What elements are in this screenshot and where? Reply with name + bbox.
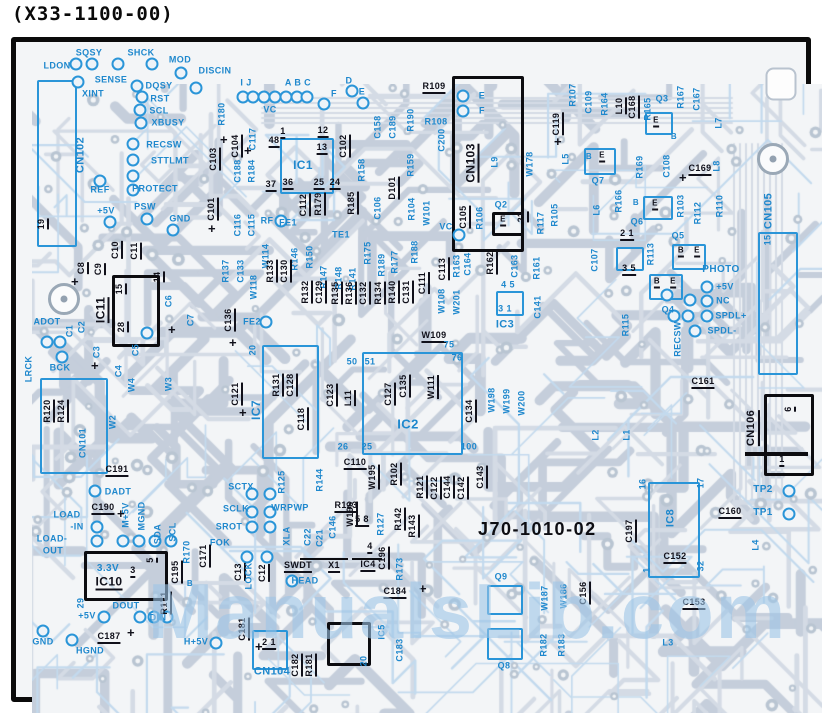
label-r183: R183: [558, 633, 567, 656]
label-c143: C143: [476, 465, 488, 488]
label-4-5: 4 5: [501, 281, 515, 290]
label-cn105: CN105: [764, 193, 775, 229]
label-e: E: [652, 200, 658, 211]
label-dadt: DADT: [105, 488, 132, 497]
label-c171: C171: [199, 544, 211, 567]
label-l7: L7: [715, 117, 724, 128]
label-12: 12: [318, 126, 329, 138]
label-b: B: [586, 153, 592, 161]
label-l9: L9: [491, 156, 500, 167]
label-ic4: IC4: [360, 560, 375, 572]
label-c6: C6: [165, 295, 174, 307]
label-l8: L8: [713, 160, 722, 171]
label-r177: R177: [391, 250, 400, 273]
label-l1: L1: [623, 429, 632, 440]
plus-mark: +: [554, 135, 562, 149]
label-29: 29: [77, 598, 86, 609]
board-number: J70-1010-02: [478, 519, 597, 540]
label-c5: C5: [132, 344, 141, 356]
label-r106: R106: [476, 206, 485, 229]
label-ldon: LDON: [43, 62, 70, 71]
label-rst: RST: [150, 95, 169, 104]
label-r110: R110: [716, 195, 725, 218]
label-sda: SDA: [154, 524, 163, 544]
solder-pad: [104, 216, 117, 229]
solder-pad: [41, 336, 54, 349]
label-c144: C144: [443, 475, 455, 498]
label-cn104: CN104: [254, 667, 290, 678]
label-tp2: TP2: [753, 485, 773, 495]
label-xint: XINT: [82, 90, 104, 99]
label-r173: R173: [396, 557, 405, 580]
label-c116: C116: [234, 214, 243, 237]
label-h+5v: H+5V: [184, 638, 208, 647]
label-c121: C121: [231, 382, 243, 405]
label-spdl+: SPDL+: [715, 312, 746, 321]
label-r162: R162: [486, 251, 498, 274]
label-r105: R105: [551, 203, 560, 226]
label-c109: C109: [585, 90, 594, 113]
solder-pad: [167, 224, 180, 237]
label-i-j: I J: [240, 79, 251, 88]
label-q3: Q3: [656, 95, 669, 104]
solder-pad: [457, 90, 470, 103]
label-fe2: FE2: [243, 318, 261, 327]
label-sense: SENSE: [95, 76, 128, 85]
label-lrck: LRCK: [25, 356, 34, 383]
label-r165: R165: [644, 97, 653, 120]
label-protect: PROTECT: [132, 185, 178, 194]
solder-pad: [246, 521, 259, 534]
label-c188: C188: [234, 159, 243, 182]
plus-mark: +: [71, 275, 79, 289]
label-w200: W200: [518, 390, 527, 415]
label-l6: L6: [593, 204, 602, 215]
solder-pad: [701, 295, 714, 308]
label-75: 75: [444, 341, 455, 350]
label-19: 19: [37, 219, 49, 230]
label-f: F: [479, 107, 485, 116]
label-c110: C110: [344, 458, 367, 470]
label-c9: C9: [94, 263, 106, 275]
label-c146: C146: [329, 515, 338, 538]
solder-pad: [72, 76, 85, 89]
label-r181: R181: [305, 653, 317, 676]
label-w2: W2: [109, 415, 118, 429]
label-w201: W201: [453, 289, 462, 314]
solder-pad: [70, 58, 83, 71]
label-r117: R117: [537, 212, 546, 235]
label-scl: SCL: [149, 107, 168, 116]
label-c2: C2: [78, 321, 87, 333]
label-sctx: SCTX: [228, 483, 254, 492]
label-r121: R121: [416, 475, 428, 498]
solder-pad: [135, 117, 148, 130]
label-c161: C161: [691, 377, 714, 389]
label-+5v: +5V: [716, 283, 733, 292]
solder-pad: [89, 485, 102, 498]
solder-pad: [190, 82, 203, 95]
label-r131: R131: [272, 373, 284, 396]
solder-pad: [86, 58, 99, 71]
label-24: 24: [330, 178, 341, 190]
label-w4: W4: [128, 378, 137, 392]
plus-mark: +: [419, 582, 427, 596]
plus-mark: +: [255, 640, 263, 654]
label-c183: C183: [396, 638, 405, 661]
label-r163: R163: [453, 254, 462, 277]
label-c1: C1: [66, 325, 75, 337]
plus-mark: +: [117, 507, 125, 521]
label-e: E: [599, 152, 605, 163]
label--in: -IN: [70, 523, 83, 532]
label-3-1: 3 1: [498, 305, 512, 314]
label-c164: C164: [464, 252, 473, 275]
label-c158: C158: [374, 115, 383, 138]
label-tp1: TP1: [753, 508, 773, 518]
label-r108: R108: [424, 118, 447, 127]
component-outline: [362, 352, 463, 455]
label-6: 6: [784, 406, 796, 411]
solder-pad: [264, 488, 277, 501]
label-ic1: IC1: [293, 159, 313, 171]
label-q7: Q7: [592, 177, 605, 186]
solder-pad: [661, 289, 674, 302]
solder-pad: [136, 91, 149, 104]
label-13: 13: [317, 143, 328, 155]
label-2-1: 2 1: [620, 229, 634, 241]
label-recsw: RECSW: [674, 321, 683, 357]
solder-pad: [783, 485, 796, 498]
label-cn102: CN102: [76, 137, 87, 173]
label-c191: C191: [105, 465, 128, 477]
label-r135: R135: [331, 281, 343, 304]
solder-pad: [98, 611, 111, 624]
solder-pad: [175, 67, 188, 80]
label-q2: Q2: [495, 201, 508, 210]
label-c107: C107: [591, 248, 600, 271]
label-r167: R167: [677, 85, 686, 108]
label-c152: C152: [663, 552, 686, 564]
label-c196: C196: [378, 546, 390, 569]
label-c4: C4: [115, 365, 124, 377]
label-c104: C104: [231, 134, 243, 157]
label-c136: C136: [224, 308, 236, 331]
label-c119: C119: [552, 113, 564, 136]
label-c118: C118: [297, 408, 309, 431]
label-w101: W101: [423, 200, 432, 225]
plus-mark: +: [168, 323, 176, 337]
label-ic5: IC5: [378, 624, 387, 639]
solder-pad: [260, 316, 273, 329]
label-1: 1: [779, 455, 784, 467]
label-r136: R136: [345, 281, 357, 304]
solder-pad: [133, 535, 146, 548]
label-ic10: IC10: [96, 576, 123, 591]
solder-pad: [264, 521, 277, 534]
label-c115: C115: [248, 214, 257, 237]
label-16: 16: [639, 479, 648, 490]
label-mgnd: MGND: [138, 501, 147, 530]
label-20: 20: [360, 656, 369, 667]
label-c21: C21: [316, 529, 325, 547]
solder-pad: [141, 213, 154, 226]
label-a-b-c: A B C: [285, 79, 311, 88]
label-36: 36: [283, 178, 294, 190]
label-e: E: [653, 117, 659, 128]
label-w195: W195: [368, 464, 380, 489]
label-srot: SROT: [216, 523, 243, 532]
solder-pad: [783, 508, 796, 521]
label-l11: L11: [344, 390, 356, 406]
label-e: E: [670, 278, 676, 289]
label-out: OUT: [43, 547, 63, 556]
label-w199: W199: [503, 388, 512, 413]
label-rf: RF: [261, 217, 274, 226]
label-3-5: 3 5: [622, 264, 636, 276]
label-w187: W187: [541, 585, 550, 610]
label-b: B: [633, 199, 639, 207]
label-ref: REF: [90, 186, 109, 195]
label-r175: R175: [364, 241, 373, 264]
label-fe1: FE1: [279, 219, 297, 228]
solder-pad: [134, 611, 147, 624]
solder-pad: [210, 637, 223, 650]
solder-pad: [701, 281, 714, 294]
label-nc: NC: [716, 297, 730, 306]
label-hgnd: HGND: [76, 647, 104, 656]
label-50: 50: [347, 358, 358, 367]
label-q9: Q9: [495, 573, 508, 582]
label-r150: R150: [306, 245, 315, 268]
label-+5v: +5V: [97, 207, 114, 216]
label-din: DIN: [150, 614, 167, 623]
component-outline: [758, 232, 798, 375]
label-xla: XLA: [283, 526, 292, 545]
label-c127: C127: [384, 382, 396, 405]
label-r188: R188: [411, 240, 420, 263]
solder-pad: [689, 325, 702, 338]
label-c141: C141: [534, 295, 543, 318]
label-l4: L4: [752, 539, 761, 550]
label-b: B: [654, 278, 660, 289]
label-r137: R137: [222, 259, 231, 282]
label-c108: C108: [663, 154, 672, 177]
plus-mark: +: [244, 144, 252, 158]
label-5: 5: [146, 557, 158, 562]
label-psw: PSW: [134, 203, 156, 212]
label-recsw: RECSW: [146, 141, 182, 150]
label-r142: R142: [394, 507, 406, 530]
label-shck: SHCK: [127, 49, 154, 58]
label-3: 3: [130, 566, 135, 578]
label-c142: C142: [457, 476, 469, 499]
label-c132: C132: [359, 281, 371, 304]
label-c195: C195: [171, 560, 183, 583]
label-head: HEAD: [291, 577, 318, 586]
label-d101: D101: [388, 176, 400, 199]
label-sclk: SCLK: [223, 505, 249, 514]
solder-pad: [91, 535, 104, 548]
label-gnd: GND: [32, 638, 53, 647]
label-1: 1: [280, 127, 285, 139]
label-c8: C8: [77, 262, 89, 274]
label-r140: R140: [388, 280, 400, 303]
label-wrpwp: WRPWP: [271, 504, 309, 513]
solder-pad: [301, 91, 314, 104]
solder-pad: [127, 138, 140, 151]
solder-pad: [357, 97, 370, 110]
label-r102: R102: [390, 462, 402, 485]
label-vc: VC: [263, 106, 276, 115]
label-r125: R125: [278, 470, 287, 493]
label-r179: R179: [314, 192, 326, 215]
label-r133: R133: [266, 259, 278, 282]
label-r171: R171: [160, 591, 172, 614]
label-r190: R190: [407, 108, 416, 131]
label-e: E: [479, 92, 485, 101]
label-c131: C131: [402, 280, 414, 303]
solder-pad: [134, 104, 147, 117]
label-r184: R184: [248, 159, 257, 182]
plus-mark: +: [679, 171, 687, 185]
solder-pad: [112, 58, 125, 71]
label-r180: R180: [218, 102, 227, 125]
label-xbusy: XBUSY: [151, 119, 184, 128]
label-l10: L10: [615, 98, 627, 115]
label-c129: C129: [315, 280, 327, 303]
label-c106: C106: [374, 196, 383, 219]
label-ic11: IC11: [95, 297, 110, 323]
pcb-annotation-layer: J70-1010-02 ManualsLib.com LDONSQSYSHCKM…: [0, 0, 838, 713]
connector-line: [745, 452, 808, 456]
component-outline: [40, 378, 108, 474]
label-e: E: [500, 216, 506, 227]
label-ic7: IC7: [250, 400, 262, 420]
label-te1: TE1: [332, 231, 350, 240]
label-2-1: 2 1: [262, 638, 276, 650]
label-c3: C3: [93, 346, 102, 358]
label-c101: C101: [207, 197, 219, 220]
solder-pad: [457, 105, 470, 118]
label-26: 26: [338, 443, 349, 452]
label-c153: C153: [682, 598, 705, 610]
label-r112: R112: [694, 202, 703, 225]
label-c113: C113: [438, 258, 450, 281]
label-spdl-: SPDL-: [708, 327, 737, 336]
solder-pad: [261, 551, 274, 564]
label-l2: L2: [592, 429, 601, 440]
label-c122: C122: [430, 476, 442, 499]
label-1: 1: [643, 567, 652, 572]
label-15: 15: [115, 284, 127, 295]
label-q5: Q5: [672, 232, 685, 241]
label-r182: R182: [540, 633, 549, 656]
label-c169: C169: [688, 164, 711, 176]
label-c102: C102: [339, 134, 351, 157]
label-22: 22: [517, 212, 529, 223]
label-5-8: 5 8: [355, 515, 369, 527]
label-r144: R144: [316, 468, 325, 491]
label-76: 76: [452, 354, 463, 363]
component-outline: [262, 345, 319, 459]
label-25: 25: [362, 443, 373, 452]
label-100: 100: [461, 443, 477, 452]
label-17: 17: [697, 478, 706, 489]
label-scl: SCL: [169, 522, 178, 541]
label-c130: C130: [280, 259, 292, 282]
label-cn106: CN106: [746, 410, 760, 446]
label-c128: C128: [286, 373, 298, 396]
solder-pad: [146, 58, 159, 71]
label-r169: R169: [636, 155, 645, 178]
label-ic2: IC2: [397, 418, 418, 431]
label-c111: C111: [418, 272, 430, 294]
label-4: 4: [367, 542, 372, 554]
mounting-hole: [766, 68, 797, 101]
label-15: 15: [764, 235, 773, 246]
label-c135: C135: [399, 374, 411, 397]
label-w111: W111: [427, 375, 439, 399]
label-l3: L3: [662, 639, 673, 648]
label-bck: BCK: [50, 364, 71, 373]
label-q8: Q8: [498, 662, 511, 671]
label-c11: C11: [130, 242, 142, 259]
label-c123: C123: [326, 383, 338, 406]
label-dqsy: DQSY: [145, 82, 172, 91]
label-c103: C103: [209, 147, 221, 170]
label-48: 48: [269, 136, 280, 148]
label-discin: DISCIN: [199, 67, 232, 76]
label-x1: X1: [328, 561, 340, 573]
label-c182: C182: [291, 653, 303, 676]
label-c160: C160: [718, 507, 741, 519]
label-load-: LOAD-: [37, 535, 68, 544]
plus-mark: +: [208, 222, 216, 236]
label-20: 20: [249, 345, 258, 356]
label-q6: Q6: [631, 218, 644, 227]
label-c22: C22: [304, 528, 313, 546]
plus-mark: +: [91, 359, 99, 373]
label-r120: R120: [43, 399, 55, 422]
label-lock: LOCK: [245, 562, 254, 589]
label-c133: C133: [237, 259, 246, 282]
solder-pad: [141, 327, 154, 340]
label-f: F: [331, 90, 337, 99]
screw-hole: [757, 143, 789, 175]
plus-mark: +: [229, 336, 237, 350]
label-r109: R109: [422, 82, 445, 94]
label-c184: C184: [383, 587, 406, 599]
label-r115: R115: [622, 314, 631, 337]
label-c168: C168: [628, 95, 640, 118]
label-vc: VC: [439, 223, 452, 232]
solder-pad: [91, 521, 104, 534]
label-c181: C181: [238, 617, 250, 640]
solder-pad: [117, 535, 130, 548]
label-r127: R127: [377, 512, 386, 535]
solder-pad: [127, 154, 140, 167]
label-fok: FOK: [210, 539, 230, 548]
label-c167: C167: [693, 87, 702, 110]
label-adot: ADOT: [33, 318, 60, 327]
label-d: D: [346, 77, 353, 86]
label-load: LOAD: [53, 511, 80, 520]
label-c12: C12: [258, 564, 270, 582]
component-outline: [487, 628, 523, 660]
label-e: E: [694, 247, 700, 258]
label-r143: R143: [408, 514, 420, 537]
